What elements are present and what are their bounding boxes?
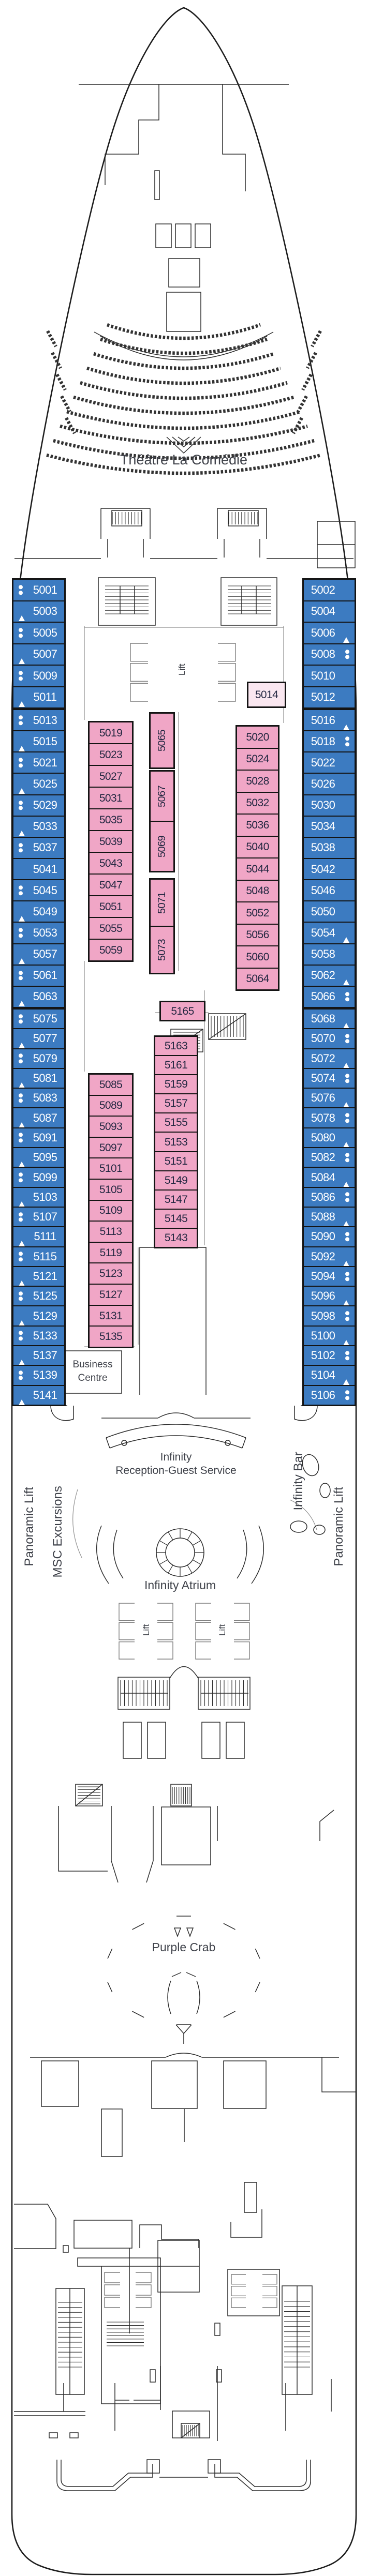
cabin-5085[interactable]: 5085 [90,1075,132,1095]
cabin-number: 5036 [237,820,278,831]
cabin-number: 5131 [90,1310,132,1321]
cabin-number: 5123 [90,1268,132,1279]
cabin-group-port-2: 5075507750795081508350875091509550995103… [12,1008,66,1406]
cabin-5056[interactable]: 5056 [237,924,278,946]
double-dots-icon [19,584,23,596]
triangle-icon [19,650,25,659]
triangle-icon [343,1054,349,1063]
cabin-5129[interactable]: 5129 [13,1305,64,1325]
cabin-5051[interactable]: 5051 [90,895,132,917]
cabin-5008[interactable]: 5008 [304,643,355,665]
theatre-label: Théâtre La Comédie [54,452,313,468]
cabin-5018[interactable]: 5018 [304,730,355,751]
cabin-number: 5023 [90,749,132,760]
cabin-group-cabin-5014-0: 5014 [247,682,286,708]
cabin-5041[interactable]: 5041 [13,858,64,879]
cabin-5028[interactable]: 5028 [237,770,278,792]
cabin-number: 5035 [90,815,132,825]
cabin-5080[interactable]: 5080 [304,1127,355,1147]
double-dots-icon [19,1052,23,1065]
double-dots-icon [19,1251,23,1263]
cabin-number: 5157 [155,1098,197,1109]
cabin-5020[interactable]: 5020 [237,727,278,748]
triangle-icon [343,1173,349,1182]
cabin-number: 5163 [155,1041,197,1051]
cabin-5141[interactable]: 5141 [13,1385,64,1405]
cabin-number: 5039 [90,836,132,847]
triangle-icon [343,1252,349,1261]
cabin-5091[interactable]: 5091 [13,1127,64,1147]
cabin-5009[interactable]: 5009 [13,665,64,686]
cabin-number: 5041 [13,864,64,875]
triangle-icon [19,1232,25,1241]
triangle-icon [19,1312,25,1321]
cabin-5079[interactable]: 5079 [13,1048,64,1068]
cabin-5005[interactable]: 5005 [13,622,64,643]
cabin-5123[interactable]: 5123 [90,1262,132,1284]
cabin-5058[interactable]: 5058 [304,943,355,965]
lift-label-atrium-port: Lift [141,1620,152,1640]
cabin-number: 5067 [157,785,167,808]
panoramic-lift-label-port: Panoramic Lift [22,1470,37,1584]
cabin-5115[interactable]: 5115 [13,1246,64,1266]
cabin-5039[interactable]: 5039 [90,830,132,852]
cabin-5013[interactable]: 5013 [13,710,64,730]
cabin-5033[interactable]: 5033 [13,816,64,837]
lift-label-atrium-starboard: Lift [217,1620,228,1640]
cabin-5081[interactable]: 5081 [13,1068,64,1088]
infinity-bar-label: Infinity Bar [291,1429,306,1533]
cabin-5071[interactable]: 5071 [151,880,173,926]
triangle-icon [19,692,25,702]
cabin-5143[interactable]: 5143 [155,1228,197,1247]
cabin-5037[interactable]: 5037 [13,837,64,858]
cabin-group-mid-forward-port-0: 5019502350275031503550395043504750515055… [88,721,134,962]
cabin-5063[interactable]: 5063 [13,986,64,1007]
triangle-icon [19,1074,25,1083]
cabin-5149[interactable]: 5149 [155,1170,197,1189]
atrium-label: Infinity Atrium [51,1578,310,1592]
double-dots-icon [345,1231,349,1243]
cabin-5084[interactable]: 5084 [304,1167,355,1186]
cabin-number: 5042 [304,864,355,875]
cabin-5099[interactable]: 5099 [13,1167,64,1186]
cabin-number: 5056 [237,929,278,940]
cabin-5094[interactable]: 5094 [304,1266,355,1286]
triangle-icon [19,1391,25,1400]
double-dots-icon [345,649,349,661]
cabin-5021[interactable]: 5021 [13,751,64,773]
cabin-number: 5165 [161,1006,204,1017]
double-dots-icon [19,1092,23,1105]
cabin-5137[interactable]: 5137 [13,1345,64,1365]
cabin-5062[interactable]: 5062 [304,965,355,986]
cabin-group-port-1: 5013501550215025502950335037504150455049… [12,709,66,1008]
triangle-icon [19,992,25,1001]
cabin-5031[interactable]: 5031 [90,787,132,808]
double-dots-icon [19,799,23,811]
cabin-5088[interactable]: 5088 [304,1207,355,1226]
triangle-icon [19,1351,25,1360]
cabin-number: 5127 [90,1289,132,1300]
double-dots-icon [19,1369,23,1382]
cabin-5074[interactable]: 5074 [304,1068,355,1088]
cabin-group-starboard-1: 5016501850225026503050345038504250465050… [302,709,356,1008]
cabin-5027[interactable]: 5027 [90,765,132,787]
cabin-number: 5026 [304,778,355,790]
cabin-5096[interactable]: 5096 [304,1286,355,1305]
cabin-5032[interactable]: 5032 [237,792,278,814]
triangle-icon [19,1113,25,1123]
deck-plan: 5001500350055007500950115013501550215025… [0,0,368,2576]
cabin-5159[interactable]: 5159 [155,1074,197,1093]
cabin-5045[interactable]: 5045 [13,879,64,900]
cabin-number: 5105 [90,1184,132,1195]
cabin-5078[interactable]: 5078 [304,1107,355,1127]
cabin-5004[interactable]: 5004 [304,600,355,622]
cabin-5046[interactable]: 5046 [304,879,355,900]
cabin-number: 5161 [155,1060,197,1071]
double-dots-icon [19,1330,23,1342]
cabin-number: 5044 [237,864,278,875]
cabin-5105[interactable]: 5105 [90,1179,132,1200]
cabin-number: 5153 [155,1137,197,1148]
cabin-number: 5135 [90,1331,132,1342]
cabin-5161[interactable]: 5161 [155,1055,197,1074]
double-dots-icon [19,1171,23,1184]
cabin-number: 5055 [90,923,132,934]
cabin-number: 5073 [157,939,167,961]
cabin-5061[interactable]: 5061 [13,965,64,986]
cabin-number: 5038 [304,842,355,853]
cabin-5103[interactable]: 5103 [13,1187,64,1207]
double-dots-icon [19,627,23,639]
double-dots-icon [19,1290,23,1303]
cabin-5131[interactable]: 5131 [90,1305,132,1326]
cabin-number: 5019 [90,728,132,739]
cabin-5024[interactable]: 5024 [237,748,278,770]
triangle-icon [19,950,25,959]
cabin-number: 5071 [157,892,167,914]
cabin-5121[interactable]: 5121 [13,1266,64,1286]
cabin-number: 5059 [90,945,132,956]
cabin-number: 5058 [304,948,355,960]
cabin-5030[interactable]: 5030 [304,794,355,816]
cabin-number: 5149 [155,1175,197,1186]
cabin-5043[interactable]: 5043 [90,852,132,873]
double-dots-icon [19,1211,23,1223]
triangle-icon [343,1133,349,1142]
triangle-icon [343,1212,349,1222]
cabin-number: 5020 [237,732,278,743]
cabin-5082[interactable]: 5082 [304,1147,355,1167]
cabin-5101[interactable]: 5101 [90,1157,132,1179]
triangle-icon [19,1034,25,1043]
cabin-number: 5089 [90,1100,132,1111]
cabin-5050[interactable]: 5050 [304,900,355,922]
double-dots-icon [19,714,23,727]
cabin-number: 5048 [237,885,278,896]
cabin-number: 5043 [90,858,132,869]
cabin-number: 5022 [304,757,355,769]
reception-label-line1: Infinity [72,1451,279,1464]
cabin-5157[interactable]: 5157 [155,1093,197,1112]
cabin-5010[interactable]: 5010 [304,665,355,686]
cabin-5139[interactable]: 5139 [13,1365,64,1384]
cabin-5133[interactable]: 5133 [13,1325,64,1345]
cabin-5011[interactable]: 5011 [13,686,64,708]
cabin-5060[interactable]: 5060 [237,945,278,968]
cabin-group-mid-forward-vertical-0: 5065 [149,712,175,769]
cabin-number: 5002 [304,584,355,596]
cabin-5047[interactable]: 5047 [90,873,132,895]
cabin-5153[interactable]: 5153 [155,1132,197,1151]
cabin-number: 5040 [237,841,278,852]
double-dots-icon [345,1191,349,1203]
cabin-number: 5046 [304,885,355,896]
double-dots-icon [19,927,23,939]
reception-label-line2: Reception-Guest Service [72,1465,279,1477]
cabin-5064[interactable]: 5064 [237,968,278,990]
panoramic-lift-label-starboard: Panoramic Lift [332,1470,346,1584]
cabin-number: 5010 [304,670,355,682]
cabin-5098[interactable]: 5098 [304,1305,355,1325]
cabin-5035[interactable]: 5035 [90,808,132,830]
triangle-icon [19,607,25,616]
cabin-5015[interactable]: 5015 [13,730,64,751]
cabin-5065[interactable]: 5065 [151,714,173,767]
cabin-5049[interactable]: 5049 [13,900,64,922]
cabin-number: 5034 [304,821,355,832]
cabin-5127[interactable]: 5127 [90,1284,132,1305]
cabin-number: 5097 [90,1142,132,1153]
cabin-5054[interactable]: 5054 [304,922,355,943]
cabin-5100[interactable]: 5100 [304,1325,355,1345]
double-dots-icon [345,1112,349,1124]
cabin-5057[interactable]: 5057 [13,943,64,965]
triangle-icon [343,1014,349,1023]
cabin-5113[interactable]: 5113 [90,1221,132,1242]
cabin-5048[interactable]: 5048 [237,880,278,902]
cabin-5019[interactable]: 5019 [90,722,132,743]
cabin-5119[interactable]: 5119 [90,1242,132,1263]
cabin-5026[interactable]: 5026 [304,773,355,794]
cabin-number: 5050 [304,906,355,917]
cabin-5069[interactable]: 5069 [151,821,173,871]
cabin-5022[interactable]: 5022 [304,751,355,773]
triangle-icon [343,971,349,980]
cabin-5070[interactable]: 5070 [304,1028,355,1048]
cabin-group-mid-forward-starboard-0: 5020502450285032503650405044504850525056… [235,725,279,991]
triangle-icon [343,1370,349,1380]
cabin-5055[interactable]: 5055 [90,917,132,939]
cabin-number: 5145 [155,1213,197,1224]
triangle-icon [19,779,25,789]
business-centre-label-line1: Business [64,1359,122,1370]
cabin-number: 5069 [157,835,167,858]
cabin-number: 5051 [90,901,132,912]
cabin-5109[interactable]: 5109 [90,1200,132,1221]
cabin-number: 5119 [90,1247,132,1258]
cabin-number: 5012 [304,691,355,703]
cabin-number: 5032 [237,797,278,808]
cabin-number: 5093 [90,1121,132,1132]
triangle-icon [19,1193,25,1202]
double-dots-icon [345,1270,349,1283]
cabin-group-starboard-2: 5068507050725074507650785080508250845086… [302,1008,356,1406]
double-dots-icon [345,1349,349,1362]
cabin-5014[interactable]: 5014 [248,683,285,706]
cabin-number: 5085 [90,1079,132,1090]
triangle-icon [19,822,25,831]
triangle-icon [343,1291,349,1301]
cabin-group-port-0: 500150035005500750095011 [12,578,66,709]
cabin-number: 5030 [304,800,355,811]
cabin-number: 5109 [90,1205,132,1216]
cabin-number: 5031 [90,793,132,804]
cabin-number: 5014 [248,689,285,700]
cabin-5077[interactable]: 5077 [13,1028,64,1048]
cabin-number: 5024 [237,754,278,764]
cabin-5042[interactable]: 5042 [304,858,355,879]
cabin-5107[interactable]: 5107 [13,1207,64,1226]
cabin-5001[interactable]: 5001 [13,580,64,600]
cabin-5093[interactable]: 5093 [90,1116,132,1137]
cabin-5102[interactable]: 5102 [304,1345,355,1365]
cabin-5086[interactable]: 5086 [304,1187,355,1207]
cabin-5087[interactable]: 5087 [13,1107,64,1127]
double-dots-icon [19,970,23,982]
cabin-5163[interactable]: 5163 [155,1037,197,1055]
cabin-5151[interactable]: 5151 [155,1151,197,1170]
cabin-5097[interactable]: 5097 [90,1137,132,1158]
cabin-5092[interactable]: 5092 [304,1246,355,1266]
cabin-5025[interactable]: 5025 [13,773,64,794]
cabin-5072[interactable]: 5072 [304,1048,355,1068]
cabin-5012[interactable]: 5012 [304,686,355,708]
cabin-5090[interactable]: 5090 [304,1226,355,1246]
double-dots-icon [345,1310,349,1322]
cabin-5111[interactable]: 5111 [13,1226,64,1246]
cabin-5083[interactable]: 5083 [13,1088,64,1107]
cabin-5059[interactable]: 5059 [90,939,132,960]
cabin-number: 5064 [237,973,278,984]
double-dots-icon [19,757,23,769]
cabin-number: 5027 [90,771,132,782]
cabin-number: 5004 [304,606,355,617]
cabin-5053[interactable]: 5053 [13,922,64,943]
double-dots-icon [345,1033,349,1045]
double-dots-icon [19,1013,23,1025]
triangle-icon [343,716,349,725]
cabin-5165[interactable]: 5165 [161,1002,204,1020]
cabin-5076[interactable]: 5076 [304,1088,355,1107]
cabin-5089[interactable]: 5089 [90,1095,132,1116]
cabin-5095[interactable]: 5095 [13,1147,64,1167]
cabin-number: 5147 [155,1194,197,1205]
cabin-5036[interactable]: 5036 [237,814,278,836]
cabin-5067[interactable]: 5067 [151,772,173,821]
cabin-number: 5065 [157,729,167,752]
cabin-5145[interactable]: 5145 [155,1209,197,1228]
double-dots-icon [345,735,349,748]
cabin-number: 5151 [155,1156,197,1167]
triangle-icon [19,1272,25,1281]
double-dots-icon [19,670,23,682]
double-dots-icon [19,1132,23,1144]
cabin-group-mid-aft-starboard-0: 5163516151595157515551535151514951475145… [154,1035,198,1248]
cabin-number: 5101 [90,1163,132,1174]
triangle-icon [343,628,349,638]
cabin-5044[interactable]: 5044 [237,857,278,880]
triangle-icon [343,1331,349,1340]
cabin-5125[interactable]: 5125 [13,1286,64,1305]
cabin-number: 5143 [155,1232,197,1243]
cabin-number: 5113 [90,1226,132,1237]
cabin-group-mid-forward-vertical-2: 50715073 [149,878,175,974]
cabin-number: 5159 [155,1079,197,1090]
double-dots-icon [345,991,349,1003]
cabin-5135[interactable]: 5135 [90,1325,132,1347]
cabin-5104[interactable]: 5104 [304,1365,355,1384]
msc-excursions-label: MSC Excursions [51,1462,65,1602]
cabin-5147[interactable]: 5147 [155,1189,197,1209]
triangle-icon [19,1153,25,1162]
cabin-5006[interactable]: 5006 [304,622,355,643]
cabin-number: 5052 [237,908,278,918]
double-dots-icon [345,1072,349,1084]
lift-label-forward: Lift [177,659,187,680]
cabin-5040[interactable]: 5040 [237,836,278,858]
cabin-group-starboard-0: 500250045006500850105012 [302,578,356,709]
double-dots-icon [19,842,23,854]
cabin-5066[interactable]: 5066 [304,986,355,1007]
triangle-icon [19,907,25,916]
cabin-5106[interactable]: 5106 [304,1385,355,1405]
cabin-number: 5047 [90,880,132,891]
triangle-icon [343,1093,349,1103]
cabin-5016[interactable]: 5016 [304,710,355,730]
cabin-group-mid-forward-vertical-1: 50675069 [149,770,175,872]
triangle-icon [343,928,349,938]
cabin-5003[interactable]: 5003 [13,600,64,622]
double-dots-icon [19,884,23,897]
cabin-5029[interactable]: 5029 [13,794,64,816]
cabin-5034[interactable]: 5034 [304,816,355,837]
double-dots-icon [345,1151,349,1164]
cabin-5002[interactable]: 5002 [304,580,355,600]
cabin-number: 5028 [237,776,278,787]
cabin-group-mid-aft-port-0: 5085508950935097510151055109511351195123… [88,1073,134,1348]
double-dots-icon [345,1389,349,1402]
business-centre-label-line2: Centre [64,1373,122,1384]
cabin-5038[interactable]: 5038 [304,837,355,858]
cabin-5052[interactable]: 5052 [237,901,278,924]
cabin-5007[interactable]: 5007 [13,643,64,665]
cabin-5073[interactable]: 5073 [151,926,173,973]
cabin-number: 5155 [155,1117,197,1128]
cabin-group-cabin-5165-0: 5165 [159,1001,205,1021]
cabin-5155[interactable]: 5155 [155,1112,197,1132]
cabin-5023[interactable]: 5023 [90,743,132,765]
triangle-icon [19,737,25,746]
purple-crab-label: Purple Crab [54,1940,313,1954]
cabin-5075[interactable]: 5075 [13,1010,64,1028]
cabin-number: 5060 [237,952,278,962]
cabin-5068[interactable]: 5068 [304,1010,355,1028]
